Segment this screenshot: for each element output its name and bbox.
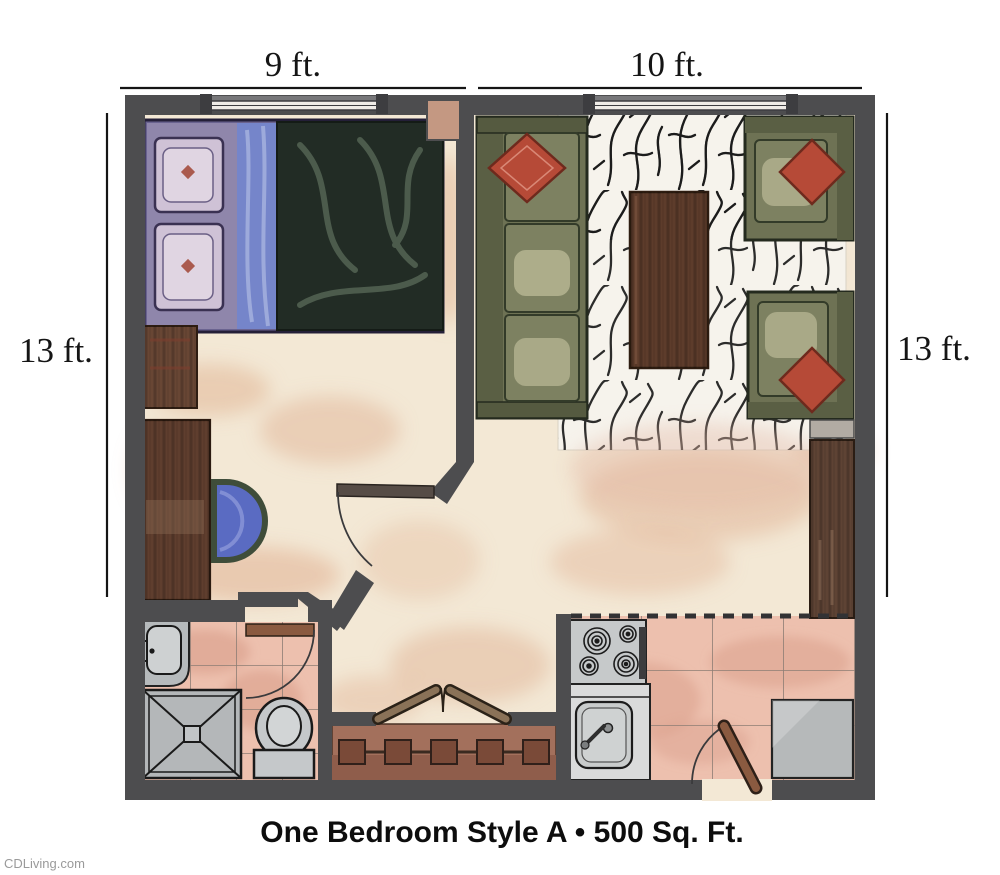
bedroom-living-divider-wall: [456, 110, 474, 462]
armchair-bottom-right: [748, 292, 853, 418]
closet-front-wall-right: [508, 712, 556, 726]
faucet-icon: [149, 648, 154, 653]
bathroom-door-leaf: [246, 624, 314, 636]
closet: [332, 724, 556, 780]
kitchen-counter-sink: [566, 684, 650, 780]
shower-drain: [184, 726, 200, 742]
side-cabinet: [810, 440, 854, 618]
desk-chair: [214, 482, 265, 560]
sofa: [477, 117, 587, 418]
kitchen-left-wall: [556, 614, 571, 780]
bedroom-door-leaf: [337, 484, 434, 498]
dimension-label-right: 13 ft.: [897, 329, 971, 368]
watermark: CDLiving.com: [4, 856, 85, 871]
coffee-table: [630, 192, 708, 368]
bedroom-bottom-wall: [238, 592, 298, 607]
vanity-sink: [139, 616, 189, 686]
bed-pillow: [155, 138, 223, 212]
floor-plan-page: 9 ft. 10 ft. 13 ft. 13 ft.: [0, 0, 1000, 875]
floor-plan-canvas: 9 ft. 10 ft. 13 ft. 13 ft.: [0, 0, 1000, 875]
stove: [568, 620, 646, 684]
dimension-label-top-right: 10 ft.: [630, 45, 704, 84]
desk: [140, 420, 210, 600]
closet-front-wall-left: [332, 712, 376, 726]
armchair-top-right: [745, 117, 853, 240]
shower: [143, 690, 241, 778]
bed: [144, 120, 443, 332]
bed-pillow: [155, 224, 223, 310]
nightstand: [143, 326, 197, 408]
refrigerator: [772, 700, 853, 778]
dimension-label-top-left: 9 ft.: [265, 45, 321, 84]
side-shelf: [810, 420, 854, 438]
bed-blanket: [277, 122, 443, 330]
wall-column: [427, 100, 460, 140]
bathroom-right-wall: [318, 600, 332, 780]
toilet: [254, 698, 314, 778]
bed-sheet: [237, 123, 277, 329]
dimension-label-left: 13 ft.: [19, 331, 93, 370]
bathroom-top-wall: [132, 600, 245, 622]
plan-caption: One Bedroom Style A • 500 Sq. Ft.: [260, 816, 743, 849]
